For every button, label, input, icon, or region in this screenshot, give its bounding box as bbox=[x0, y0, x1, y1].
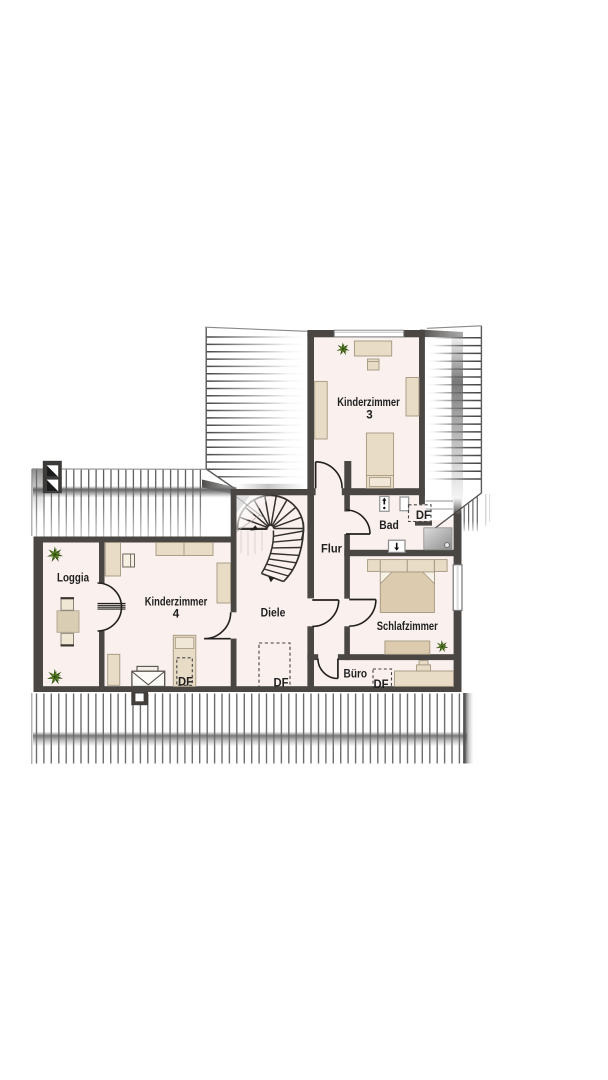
svg-text:4: 4 bbox=[173, 607, 180, 620]
svg-text:Diele: Diele bbox=[261, 606, 286, 619]
svg-text:3: 3 bbox=[366, 408, 373, 421]
svg-text:DF: DF bbox=[274, 676, 289, 689]
svg-text:DF: DF bbox=[416, 509, 431, 522]
svg-text:DF: DF bbox=[374, 678, 389, 691]
svg-text:Flur: Flur bbox=[321, 543, 342, 556]
svg-text:Büro: Büro bbox=[344, 668, 368, 681]
svg-text:Bad: Bad bbox=[379, 519, 399, 532]
svg-text:Schlafzimmer: Schlafzimmer bbox=[377, 620, 438, 633]
svg-text:DF: DF bbox=[178, 676, 193, 689]
svg-text:Kinderzimmer: Kinderzimmer bbox=[337, 396, 400, 409]
svg-text:Loggia: Loggia bbox=[57, 571, 89, 584]
